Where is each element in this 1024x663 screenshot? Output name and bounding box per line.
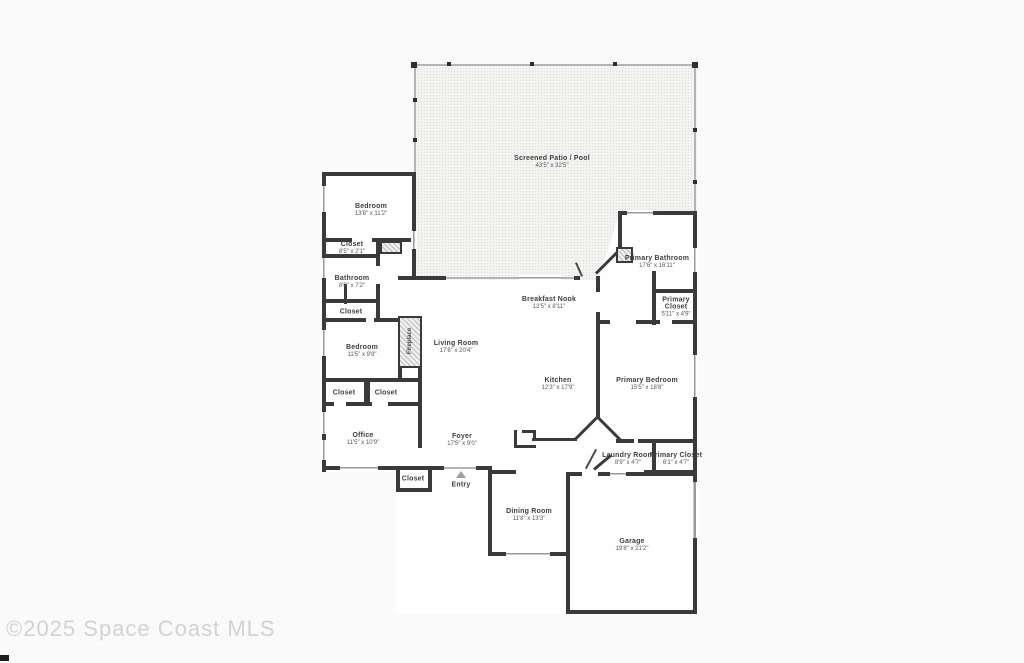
patio-post (447, 62, 451, 66)
wall (376, 238, 380, 266)
window-marker (506, 551, 550, 557)
wall (376, 284, 380, 322)
wall (644, 470, 697, 474)
wall (618, 211, 622, 251)
wall (388, 402, 422, 406)
wall (638, 439, 697, 443)
room-label-living-room: Living Room 17'6" x 20'4" (434, 340, 479, 354)
room-label-closet-4: Closet (375, 390, 398, 397)
room-label-primary-bedroom: Primary Bedroom 15'5" x 18'8" (616, 377, 678, 391)
wall (346, 402, 372, 406)
floor-plan: Fireplace (0, 0, 1024, 663)
patio-post (693, 180, 697, 184)
window-marker (321, 412, 327, 434)
window-marker (627, 210, 653, 216)
patio-post (411, 62, 417, 68)
window-marker (692, 248, 698, 272)
room-label-breakfast-nook: Breakfast Nook 12'5" x 8'11" (522, 296, 576, 310)
wall (396, 488, 432, 492)
mls-watermark: ©2025 Space Coast MLS (6, 616, 276, 642)
patio-post (692, 62, 698, 68)
wall (322, 318, 366, 322)
wall (412, 172, 416, 280)
room-label-patio: Screened Patio / Pool 43'5" x 32'5" (514, 155, 590, 169)
room-label-foyer: Foyer 17'5" x 9'0" (447, 433, 477, 447)
kitchen-island (533, 430, 536, 440)
room-label-laundry-room: Laundry Room 8'9" x 4'7" (602, 452, 654, 466)
wall (596, 276, 600, 292)
wall (672, 320, 697, 324)
room-label-bedroom-1: Bedroom 13'8" x 11'2" (355, 203, 387, 217)
wall (488, 466, 492, 556)
window-marker (340, 465, 378, 471)
window-marker (321, 186, 327, 212)
wall (652, 289, 697, 293)
patio-post (413, 138, 417, 142)
room-label-dining-room: Dining Room 11'8" x 13'3" (506, 508, 552, 522)
entry-door-sill (444, 467, 476, 469)
window-marker (321, 330, 327, 356)
room-label-primary-bathroom: Primary Bathroom 17'6" x 16'11" (625, 255, 689, 269)
wall (566, 472, 582, 476)
patio-screen-wall (694, 64, 696, 212)
patio-post (613, 62, 617, 66)
window-marker (692, 355, 698, 397)
wall (322, 402, 334, 406)
patio-post (530, 62, 534, 66)
closet-shelf (380, 241, 402, 254)
wall (566, 610, 697, 614)
wall (616, 439, 634, 443)
wall (322, 378, 422, 382)
entry-arrow-icon (456, 471, 466, 478)
corner-mark (0, 655, 9, 661)
room-label-garage: Garage 19'8" x 21'2" (616, 538, 649, 552)
room-label-primary-closet-2: Primary Closet 6'1" x 4'7" (650, 452, 702, 466)
wall (566, 472, 570, 614)
room-label-fireplace: Fireplace (407, 328, 413, 354)
wall (364, 378, 370, 405)
garage-door-marker (691, 482, 699, 538)
wall (574, 276, 580, 280)
room-label-closet-3: Closet (333, 390, 356, 397)
room-label-bedroom-2: Bedroom 11'5" x 9'8" (346, 344, 378, 358)
window-marker (610, 471, 626, 477)
floor-lower (396, 466, 697, 614)
wall (398, 276, 446, 280)
room-label-bathroom: Bathroom 8'0" x 7'2" (335, 275, 370, 289)
room-label-office: Office 11'5" x 10'9" (347, 432, 379, 446)
wall (322, 172, 416, 176)
patio-screen-wall (414, 64, 416, 174)
wall (596, 320, 610, 324)
room-label-closet-2: Closet (340, 309, 363, 316)
kitchen-island (514, 445, 536, 448)
room-label-closet-5: Closet (402, 476, 425, 483)
room-label-closet-1: Closet 8'5" x 2'1" (339, 241, 365, 255)
wall (652, 271, 656, 291)
room-label-primary-closet-1: Primary Closet 5'11" x 4'9" (658, 297, 694, 318)
patio-post (693, 128, 697, 132)
window-marker (411, 231, 417, 249)
patio-screen-wall (414, 64, 696, 66)
room-label-entry: Entry (452, 482, 471, 489)
window-marker (518, 275, 562, 281)
window-marker (321, 440, 327, 460)
wall (322, 299, 380, 303)
wall (532, 438, 577, 441)
wall (596, 312, 600, 418)
room-label-kitchen: Kitchen 12'3" x 17'9" (542, 377, 575, 391)
wall (636, 320, 660, 324)
wall (488, 470, 516, 474)
wall (418, 368, 422, 448)
window-marker (321, 258, 327, 278)
patio-post (413, 98, 417, 102)
